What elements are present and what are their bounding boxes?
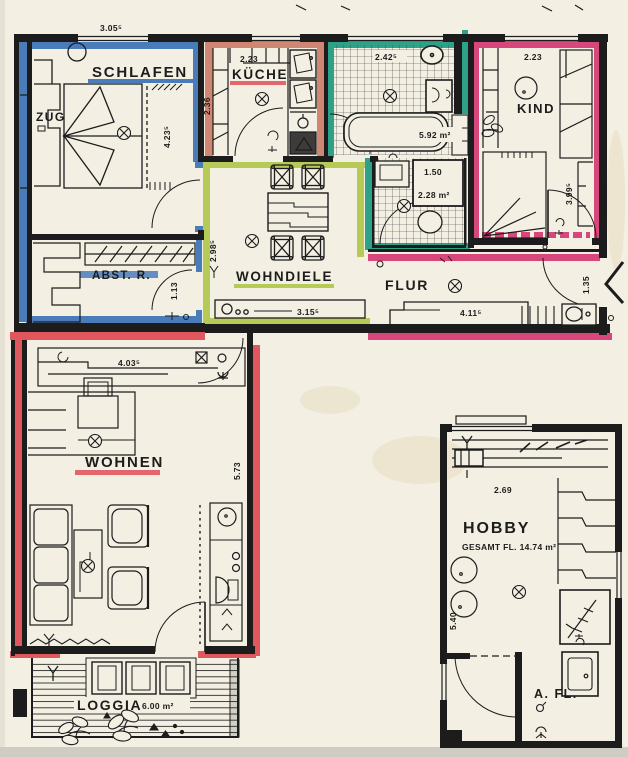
loggia-area: 6.00 m² — [142, 701, 174, 711]
entry-wc-icon — [562, 304, 596, 325]
floor-plan-drawing: SCHLAFEN ZUG 3.05⁵ 4.23⁵ ABST. R. 1.13 — [0, 0, 628, 757]
schlafen-dim-right: 4.23⁵ — [162, 126, 172, 148]
ceiling-lamp-icon — [246, 235, 259, 248]
ceiling-lamp-icon — [256, 93, 269, 106]
wc-area: 2.28 m² — [418, 190, 450, 200]
kind-label: KIND — [517, 101, 555, 116]
toilet-icon — [418, 211, 442, 233]
bad-area: 5.92 m² — [419, 130, 451, 140]
kueche-label: KÜCHE — [232, 67, 288, 82]
wohnen-label: WOHNEN — [85, 454, 164, 471]
abstellraum-dim: 1.13 — [169, 282, 179, 300]
ceiling-lamp-icon — [398, 200, 411, 213]
schlafen-label: SCHLAFEN — [92, 64, 188, 81]
room-loggia: LOGGIA 6.00 m² — [14, 658, 239, 746]
flur-dim-bottom: 4.11⁵ — [460, 308, 482, 318]
ceiling-lamp-icon — [513, 586, 526, 599]
floor-plan-page: SCHLAFEN ZUG 3.05⁵ 4.23⁵ ABST. R. 1.13 — [0, 0, 628, 757]
wohndiele-dim-left: 2.98⁵ — [208, 240, 218, 262]
ceiling-lamp-icon — [118, 127, 131, 140]
table-lamp-icon — [82, 560, 95, 573]
flur-dim-right: 1.35 — [581, 276, 591, 294]
hobby-area-label: GESAMT FL. 14.74 m² — [462, 542, 556, 552]
wohndiele-label: WOHNDIELE — [236, 269, 333, 284]
hobby-dim-left: 5.40 — [448, 612, 458, 630]
wohndiele-dim-bottom: 3.15⁵ — [297, 307, 319, 317]
scan-edge-shadow — [0, 747, 628, 757]
schlafen-dim-top: 3.05⁵ — [100, 23, 122, 33]
wc-dim: 1.50 — [424, 167, 442, 177]
stove-icon — [290, 132, 316, 154]
kitchen-sink2-icon — [290, 80, 316, 108]
kueche-dim-top: 2.23 — [240, 54, 258, 64]
abstellraum-label: ABST. R. — [92, 270, 151, 282]
sideboard-icon — [215, 300, 365, 318]
zug-label: ZUG — [36, 110, 66, 124]
stool-icon — [302, 165, 324, 189]
flur-label: FLUR — [385, 277, 429, 293]
afl-label: A. FL. — [534, 687, 578, 701]
ceiling-lamp-icon — [384, 90, 397, 103]
kitchen-sink-icon — [290, 50, 316, 78]
loggia-label: LOGGIA — [77, 697, 142, 713]
wohnen-dim-top: 4.03⁵ — [118, 358, 140, 368]
stool-icon — [302, 236, 324, 260]
hobby-dim-top: 2.69 — [494, 485, 512, 495]
ceiling-lamp-icon — [449, 280, 462, 293]
loggia-chairs-icon — [86, 658, 196, 698]
stool-icon — [271, 165, 293, 189]
bad-dim-top: 2.42⁵ — [375, 52, 397, 62]
hobby-cabinet-icon — [560, 590, 610, 644]
ceiling-lamp-icon — [89, 435, 102, 448]
kind-dim-top: 2.23 — [524, 52, 542, 62]
washbasin-icon — [421, 46, 443, 64]
kueche-dim-left: 2.36 — [202, 97, 212, 115]
wohnen-dim-right: 5.73 — [232, 462, 242, 480]
stool-icon — [271, 236, 293, 260]
hobby-label: HOBBY — [463, 520, 530, 537]
kind-dim-right: 3.99⁵ — [564, 183, 574, 205]
